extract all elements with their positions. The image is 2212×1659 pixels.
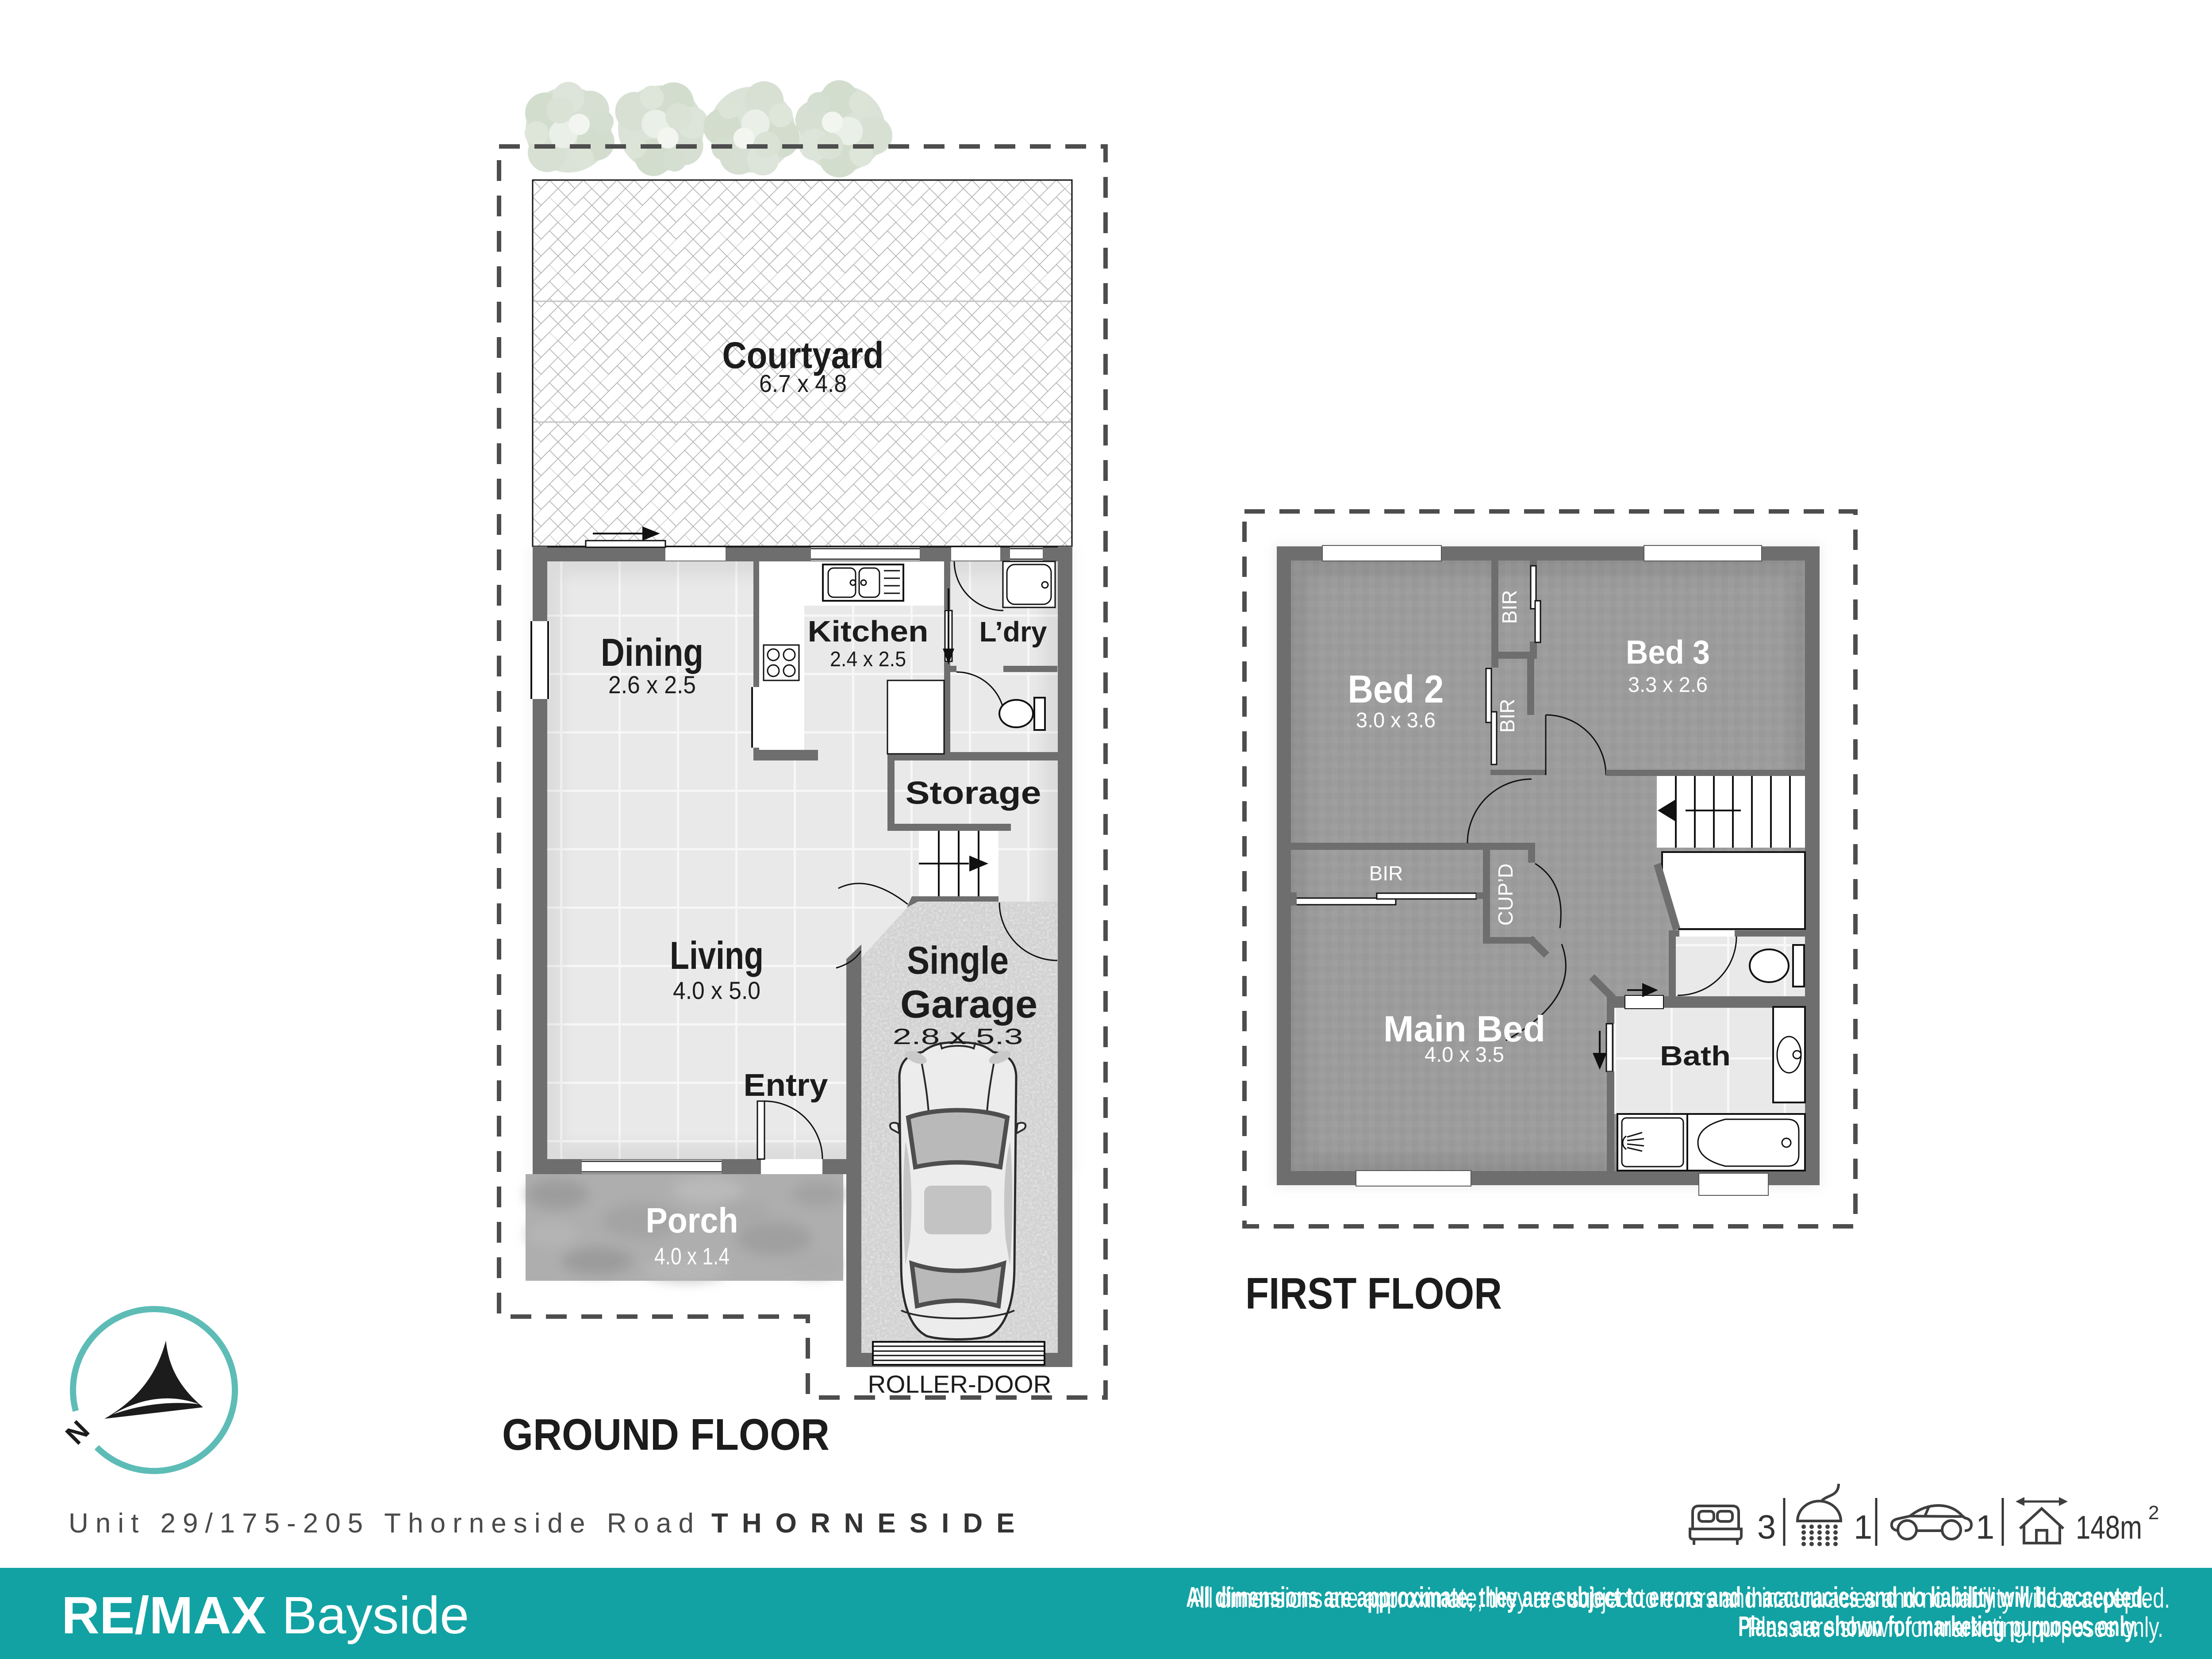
svg-text:4.0 x 5.0: 4.0 x 5.0 bbox=[673, 976, 760, 1004]
svg-text:Bayside: Bayside bbox=[282, 1586, 469, 1645]
svg-text:2.4 x 2.5: 2.4 x 2.5 bbox=[830, 648, 906, 671]
svg-text:L’dry: L’dry bbox=[979, 616, 1047, 648]
svg-text:FIRST FLOOR: FIRST FLOOR bbox=[1245, 1269, 1502, 1318]
svg-text:BIR: BIR bbox=[1498, 590, 1521, 624]
svg-text:Entry: Entry bbox=[744, 1068, 829, 1103]
svg-text:2.8 x 5.3: 2.8 x 5.3 bbox=[893, 1024, 1023, 1049]
svg-text:3: 3 bbox=[1757, 1509, 1776, 1546]
svg-text:Plans are shown for marketing: Plans are shown for marketing purposes o… bbox=[1738, 1610, 2139, 1642]
svg-text:Unit 29/175-205 Thorneside Roa: Unit 29/175-205 Thorneside Road bbox=[69, 1508, 701, 1539]
svg-text:6.7 x 4.8: 6.7 x 4.8 bbox=[759, 369, 847, 397]
svg-text:ROLLER-DOOR: ROLLER-DOOR bbox=[868, 1370, 1052, 1398]
svg-text:CUP’D: CUP’D bbox=[1494, 864, 1517, 926]
svg-text:Bed 3: Bed 3 bbox=[1626, 634, 1710, 671]
svg-text:RE/MAX: RE/MAX bbox=[61, 1586, 266, 1645]
svg-text:148m: 148m bbox=[2076, 1509, 2142, 1546]
svg-text:2.6 x 2.5: 2.6 x 2.5 bbox=[608, 671, 696, 699]
svg-text:BIR: BIR bbox=[1369, 862, 1403, 885]
svg-text:Porch: Porch bbox=[646, 1201, 738, 1240]
svg-text:1: 1 bbox=[1976, 1509, 1994, 1546]
svg-text:4.0 x 1.4: 4.0 x 1.4 bbox=[654, 1243, 730, 1270]
svg-text:Garage: Garage bbox=[900, 982, 1037, 1026]
svg-text:4.0 x 3.5: 4.0 x 3.5 bbox=[1425, 1043, 1504, 1067]
svg-text:3.3 x 2.6: 3.3 x 2.6 bbox=[1628, 673, 1708, 697]
svg-text:BIR: BIR bbox=[1496, 699, 1519, 733]
svg-text:2: 2 bbox=[2148, 1502, 2159, 1524]
svg-text:Dining: Dining bbox=[601, 630, 703, 674]
svg-text:Living: Living bbox=[670, 933, 764, 977]
svg-text:Bed 2: Bed 2 bbox=[1348, 667, 1444, 711]
svg-text:3.0 x 3.6: 3.0 x 3.6 bbox=[1356, 709, 1436, 732]
svg-text:Storage: Storage bbox=[906, 776, 1041, 811]
svg-text:Kitchen: Kitchen bbox=[808, 615, 929, 648]
svg-text:Bath: Bath bbox=[1660, 1041, 1731, 1071]
svg-text:All dimensions are approximate: All dimensions are approximate; they are… bbox=[1186, 1581, 2148, 1613]
svg-text:1: 1 bbox=[1854, 1509, 1872, 1546]
svg-text:THORNESIDE: THORNESIDE bbox=[711, 1508, 1028, 1539]
svg-text:GROUND FLOOR: GROUND FLOOR bbox=[502, 1410, 829, 1459]
svg-text:Single: Single bbox=[907, 938, 1009, 982]
